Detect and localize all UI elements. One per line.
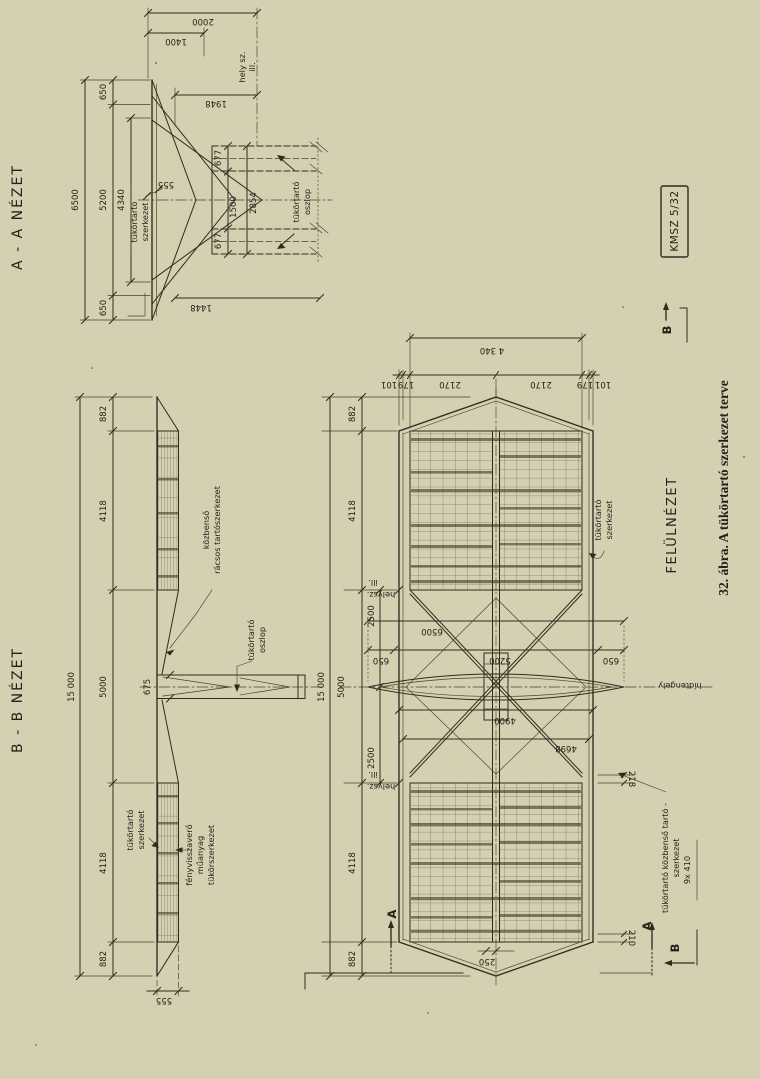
dim-plan-4118b: 4118 bbox=[348, 852, 358, 874]
marker-b-bottom: B bbox=[668, 944, 682, 953]
dim-plan-250: 250 bbox=[479, 956, 495, 966]
plan-intermediate-label-line1: tükörtartó közbenső tartó - bbox=[660, 803, 670, 913]
aa-column-label-line2: oszlop bbox=[302, 189, 312, 215]
plan-axis-label: hídtengely bbox=[658, 681, 702, 691]
aa-mirror-structure-line2: szerkezet bbox=[140, 202, 150, 242]
dim-bb-675: 675 bbox=[143, 679, 153, 695]
bb-reflective-label-line2: műanyag bbox=[195, 836, 205, 874]
dim-plan-2500b: 2500 bbox=[367, 747, 377, 769]
bb-reflective-label-line3: tükörszerkezet bbox=[206, 824, 216, 885]
view-bb: B - B NÉZET 15 000 882 4118 bbox=[9, 394, 322, 1006]
marker-b-top: B bbox=[660, 326, 674, 335]
dim-plan-101b: 101 bbox=[595, 379, 611, 389]
aa-site-joint-line2: ill. bbox=[247, 62, 257, 71]
dim-aa-650-top: 650 bbox=[99, 84, 109, 100]
dim-aa-1948: 1948 bbox=[205, 98, 227, 108]
stamp-code: KMSZ 5/32 bbox=[669, 190, 681, 251]
marker-a-left: A bbox=[385, 909, 399, 918]
dim-aa-1400: 1400 bbox=[165, 36, 187, 46]
dim-plan-210: 210 bbox=[626, 930, 636, 946]
dim-bb-15000: 15 000 bbox=[67, 672, 77, 702]
dim-plan-882a: 882 bbox=[348, 406, 358, 422]
dim-aa-555: 555 bbox=[158, 179, 174, 189]
aa-column-label-line1: tükörtartó bbox=[291, 181, 301, 222]
plan-joint1-line1: ill. bbox=[368, 578, 377, 588]
dim-plan-4698: 4698 bbox=[555, 743, 577, 753]
dim-bb-555: 555 bbox=[156, 995, 172, 1005]
dim-plan-218: 218 bbox=[626, 771, 636, 787]
plan-title: FELÜLNÉZET bbox=[663, 476, 680, 573]
dim-plan-6500: 6500 bbox=[421, 626, 443, 636]
aa-title: A - A NÉZET bbox=[9, 164, 26, 270]
dim-aa-4340: 4340 bbox=[117, 189, 127, 211]
dim-aa-6500: 6500 bbox=[71, 189, 81, 211]
plan-geometry bbox=[340, 388, 712, 985]
dim-plan-2170b: 2170 bbox=[530, 379, 552, 389]
dim-plan-5000: 5000 bbox=[337, 676, 347, 698]
dim-aa-650-bot: 650 bbox=[99, 300, 109, 316]
dim-plan-101a: 101 bbox=[381, 379, 397, 389]
dim-plan-4900: 4900 bbox=[494, 715, 516, 725]
plan-intermediate-label-line3: 9x 410 bbox=[682, 856, 692, 884]
bb-mirror-structure-line2: szerkezet bbox=[136, 810, 146, 850]
dim-bb-882-top: 882 bbox=[99, 406, 109, 422]
scanned-drawing-page: A - A NÉZET 6500 650 5200 650 bbox=[0, 0, 760, 1079]
bb-lattice-label-line1: közbenső bbox=[201, 511, 211, 549]
aa-dimensions: 6500 650 5200 650 4340 555 2000 1400 194… bbox=[71, 8, 324, 324]
plan-intermediate-label-line2: szerkezet bbox=[671, 838, 681, 878]
bb-title: B - B NÉZET bbox=[9, 647, 26, 753]
dim-bb-882-bot: 882 bbox=[99, 951, 109, 967]
dim-plan-179a: 179 bbox=[398, 379, 414, 389]
plan-joint2-line1: ill. bbox=[368, 770, 377, 780]
bb-geometry bbox=[140, 397, 322, 976]
view-plan: FELÜLNÉZET bbox=[317, 333, 712, 985]
plan-mirror-structure-line2: szerkezet bbox=[604, 500, 614, 540]
dim-aa-2000: 2000 bbox=[192, 16, 214, 26]
bb-lattice-label-line2: rácsos tartószerkezet bbox=[212, 485, 222, 574]
dim-plan-4118a: 4118 bbox=[348, 500, 358, 522]
aa-mirror-structure-line1: tükörtartó bbox=[129, 201, 139, 242]
dim-plan-882b: 882 bbox=[348, 951, 358, 967]
dim-plan-2500a: 2500 bbox=[367, 605, 377, 627]
dim-plan-650a: 650 bbox=[373, 655, 389, 665]
dim-aa-5200: 5200 bbox=[99, 189, 109, 211]
dim-aa-677-top: 677 bbox=[214, 150, 224, 166]
dim-plan-2170a: 2170 bbox=[439, 379, 461, 389]
dim-aa-677-bot: 677 bbox=[214, 233, 224, 249]
dim-aa-1500: 1500 bbox=[229, 196, 239, 218]
dim-plan-179b: 179 bbox=[577, 379, 593, 389]
technical-drawing-sheet: A - A NÉZET 6500 650 5200 650 bbox=[0, 0, 760, 1079]
bb-column-label-line2: oszlop bbox=[257, 627, 267, 653]
dim-bb-4118-bot: 4118 bbox=[99, 852, 109, 874]
dim-aa-2854: 2854 bbox=[249, 192, 259, 214]
aa-site-joint-line1: hely sz. bbox=[237, 51, 247, 82]
plan-mirror-structure-line1: tükörtartó bbox=[593, 499, 603, 540]
plan-joint2-line2: helysz. bbox=[367, 782, 396, 792]
dim-bb-5000: 5000 bbox=[99, 676, 109, 698]
plan-joint1-line2: helysz. bbox=[367, 590, 396, 600]
figure-caption: 32. ábra. A tükörtartó szerkezet terve bbox=[716, 380, 731, 596]
dim-aa-1448: 1448 bbox=[190, 302, 212, 312]
bb-mirror-structure-line1: tükörtartó bbox=[125, 809, 135, 850]
dim-plan-650b: 650 bbox=[603, 655, 619, 665]
stamp-box: KMSZ 5/32 bbox=[661, 186, 688, 257]
dim-plan-5200: 5200 bbox=[489, 655, 511, 665]
dim-plan-15000: 15 000 bbox=[317, 672, 327, 702]
view-aa: A - A NÉZET 6500 650 5200 650 bbox=[9, 8, 332, 324]
dim-plan-4340: 4 340 bbox=[480, 345, 504, 355]
bb-reflective-label-line1: fényvisszaverő bbox=[184, 824, 194, 885]
dim-bb-4118-top: 4118 bbox=[99, 500, 109, 522]
bb-column-label-line1: tükörtartó bbox=[246, 619, 256, 660]
